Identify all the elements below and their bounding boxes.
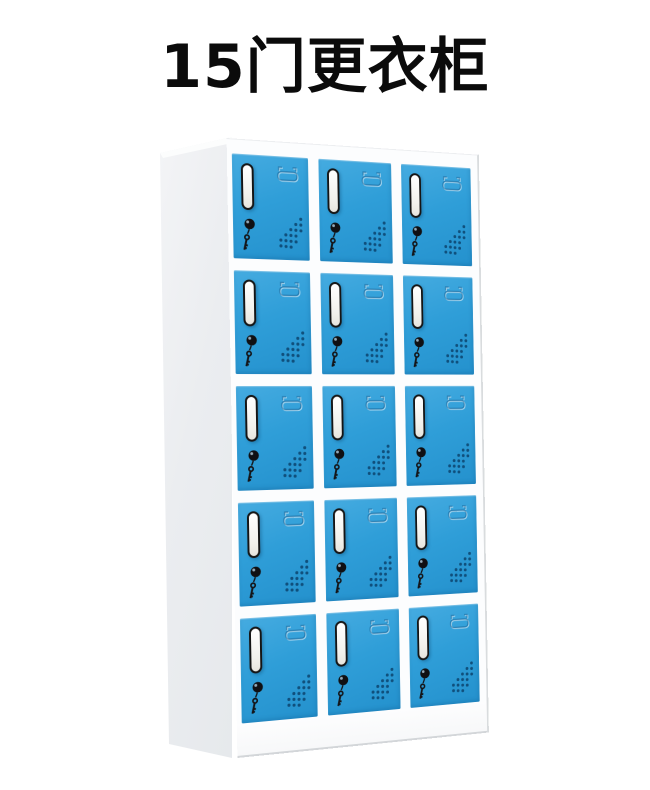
vent-holes-icon: [366, 442, 390, 479]
name-card-slot-icon: [417, 616, 429, 661]
name-card-slot-icon: [333, 508, 346, 554]
locker-door: [238, 500, 316, 607]
name-card-slot-icon: [413, 395, 425, 440]
name-card-slot-icon: [335, 621, 348, 668]
locker-door: [409, 604, 480, 708]
lock-and-key-icon: [330, 448, 353, 485]
locker-door: [322, 386, 396, 488]
lock-and-key-icon: [240, 218, 264, 257]
name-card-slot-icon: [331, 395, 344, 441]
name-card-slot-icon: [241, 163, 255, 210]
name-card-slot-icon: [415, 505, 427, 550]
lock-and-key-icon: [416, 667, 438, 705]
lock-and-key-icon: [414, 557, 436, 594]
handle-recess-icon: [361, 394, 389, 413]
vent-holes-icon: [278, 214, 303, 252]
locker-cabinet: [0, 0, 650, 790]
vent-holes-icon: [282, 444, 307, 482]
name-card-slot-icon: [327, 168, 340, 214]
vent-holes-icon: [450, 659, 473, 697]
locker-door: [324, 498, 398, 602]
handle-recess-icon: [277, 394, 306, 414]
handle-recess-icon: [358, 169, 386, 190]
locker-door: [401, 164, 472, 266]
lock-and-key-icon: [326, 221, 349, 259]
name-card-slot-icon: [247, 511, 260, 558]
handle-recess-icon: [363, 505, 391, 525]
cabinet-front: [227, 138, 489, 758]
lock-and-key-icon: [242, 334, 266, 372]
locker-door: [234, 270, 312, 375]
handle-recess-icon: [365, 617, 393, 638]
name-card-slot-icon: [329, 281, 342, 327]
vent-holes-icon: [443, 222, 466, 259]
name-card-slot-icon: [249, 627, 262, 675]
cabinet-side-panel: [160, 137, 232, 758]
vent-holes-icon: [370, 665, 394, 704]
lock-and-key-icon: [410, 336, 432, 372]
handle-recess-icon: [273, 164, 302, 185]
locker-door: [320, 272, 394, 374]
vent-holes-icon: [445, 331, 468, 367]
vent-holes-icon: [368, 554, 392, 592]
product-image: 15门更衣柜: [0, 0, 650, 790]
vent-holes-icon: [364, 330, 388, 367]
vent-holes-icon: [447, 441, 470, 477]
vent-holes-icon: [280, 329, 305, 367]
locker-door: [405, 386, 476, 486]
vent-holes-icon: [286, 672, 311, 711]
handle-recess-icon: [279, 508, 308, 529]
name-card-slot-icon: [411, 284, 423, 329]
lock-and-key-icon: [244, 450, 268, 488]
lock-and-key-icon: [248, 681, 272, 721]
handle-recess-icon: [438, 174, 464, 194]
vent-holes-icon: [362, 218, 386, 255]
handle-recess-icon: [359, 281, 387, 301]
locker-door: [407, 495, 478, 597]
handle-recess-icon: [442, 394, 468, 413]
locker-door: [240, 614, 318, 723]
locker-door: [403, 275, 474, 375]
lock-and-key-icon: [332, 561, 355, 599]
handle-recess-icon: [446, 612, 472, 633]
door-grid: [232, 153, 480, 723]
handle-recess-icon: [444, 503, 470, 523]
locker-door: [318, 159, 392, 263]
lock-and-key-icon: [246, 565, 270, 604]
handle-recess-icon: [440, 284, 466, 303]
handle-recess-icon: [281, 622, 310, 644]
name-card-slot-icon: [245, 395, 258, 442]
lock-and-key-icon: [334, 674, 357, 713]
vent-holes-icon: [448, 550, 471, 587]
locker-door: [232, 153, 310, 260]
handle-recess-icon: [275, 279, 304, 299]
lock-and-key-icon: [408, 225, 430, 262]
name-card-slot-icon: [409, 173, 421, 218]
lock-and-key-icon: [412, 447, 434, 484]
lock-and-key-icon: [328, 335, 351, 372]
name-card-slot-icon: [243, 279, 257, 326]
vent-holes-icon: [284, 558, 309, 597]
locker-door: [236, 386, 314, 491]
locker-door: [326, 609, 400, 716]
